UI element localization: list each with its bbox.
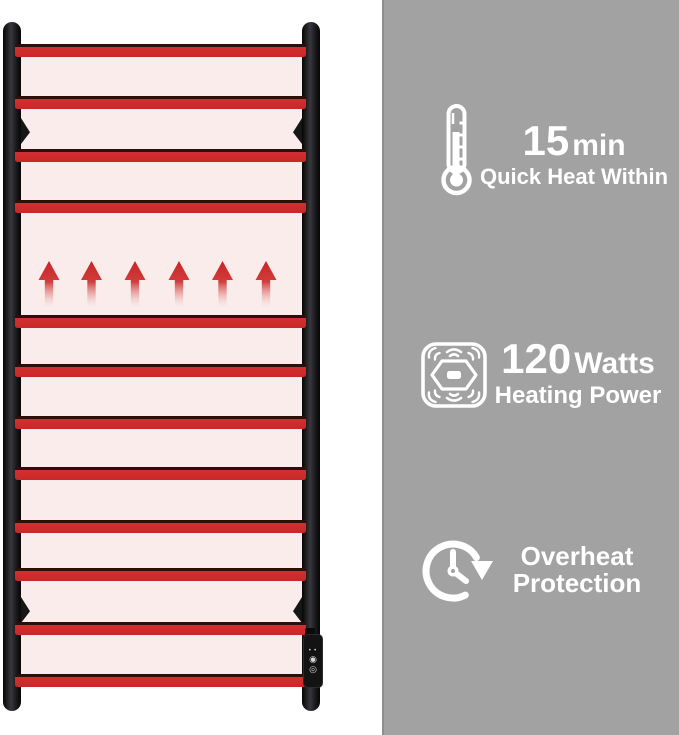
towel-warmer: • • ◉ ◎ [0,0,382,735]
feature-label-line1: Overheat [470,543,679,570]
heated-rung [15,568,306,581]
feature-quick-heat: 15min Quick Heat Within [468,120,679,188]
feature-value: 15 [522,117,569,164]
control-panel: • • ◉ ◎ [303,634,323,688]
features-panel: 15min Quick Heat Within [382,0,679,735]
feature-label: Heating Power [472,384,679,408]
feature-value-line: 120Watts [472,338,679,381]
heated-rung [15,364,306,377]
heated-rung [15,149,306,162]
heated-rung [15,315,306,328]
product-image: • • ◉ ◎ 15min Quick Heat Within [0,0,679,735]
heated-rung [15,520,306,533]
feature-heating-power: 120Watts Heating Power [472,338,679,408]
feature-unit: Watts [574,347,655,380]
power-icon: ◉ [309,655,317,664]
timer-icon: ◎ [309,665,317,674]
feature-value: 120 [501,335,571,382]
heated-rung [15,622,306,635]
heat-rise-arrows-icon [36,261,280,309]
feature-unit: min [572,129,625,162]
feature-label-line2: Protection [470,570,679,597]
feature-label: Quick Heat Within [468,166,679,188]
feature-overheat-protection: Overheat Protection [470,543,679,597]
heated-rung [15,96,306,109]
heated-rung [15,44,306,57]
feature-value-line: 15min [468,120,679,163]
heated-rung [15,467,306,480]
heated-rung [15,674,306,687]
heated-rung [15,416,306,429]
heated-rung [15,200,306,213]
